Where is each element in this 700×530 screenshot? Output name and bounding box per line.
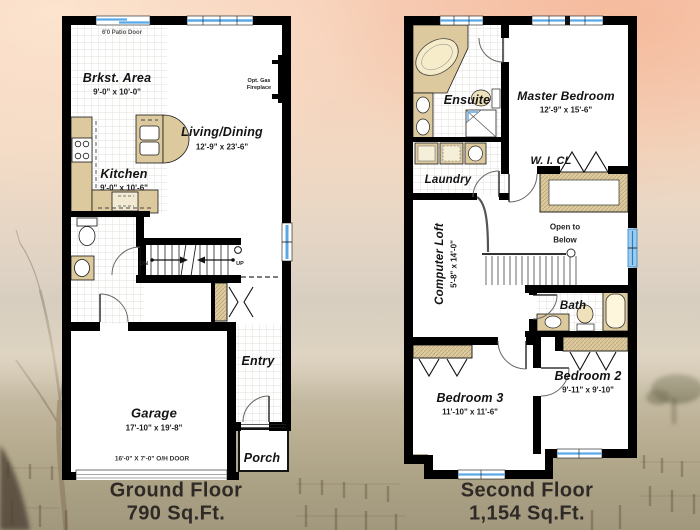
open-to-below-line1: Open to [550, 223, 580, 232]
garage-door [76, 470, 227, 480]
room-label-bath: Bath [560, 300, 586, 312]
floorplan-flyer: 6'0 Patio Door Brkst. Area 9'-0" x 10'-0… [0, 0, 700, 530]
stove [72, 138, 92, 162]
powder-toilet-tank [77, 218, 97, 226]
room-label-ensuite: Ensuite [444, 93, 491, 107]
room-label-kitchen: Kitchen [100, 167, 147, 181]
powder-toilet-bowl [79, 227, 95, 246]
ensuite-toilet-tank [492, 89, 500, 108]
stairs-down-label: DN [140, 261, 148, 267]
laundry-basin [469, 146, 483, 161]
overhead-door-note: 16'-0" X 7'-0" O/H DOOR [115, 456, 189, 463]
room-label-bedroom3: Bedroom 3 [436, 391, 503, 405]
room-label-bedroom2: Bedroom 2 [554, 369, 621, 383]
room-dims-bedroom3: 11'-10" x 11'-6" [442, 408, 498, 417]
open-to-below-line2: Below [553, 236, 577, 245]
room-label-garage: Garage [131, 406, 177, 421]
ground-floor-caption: Ground Floor [110, 480, 243, 503]
newel-post [567, 249, 575, 257]
closet-interior [549, 180, 619, 205]
room-dims-bedroom2: 9'-11" x 9'-10" [562, 386, 614, 395]
room-dims-kitchen: 9'-0" x 10'-6" [100, 184, 148, 193]
room-dims-master-bedroom: 12'-9" x 15'-6" [540, 106, 592, 115]
room-dims-brkst-area: 9'-0" x 10'-0" [93, 88, 141, 97]
fireplace-note-line1: Opt. Gas [248, 78, 271, 84]
room-dims-living-dining: 12'-9" x 23'-6" [196, 143, 248, 152]
bath-toilet-tank [577, 324, 594, 331]
room-dims-computer-loft: 5'-8" x 14'-0" [450, 240, 459, 288]
fireplace-note-line2: Fireplace [247, 85, 271, 91]
second-floor-caption: Second Floor [461, 480, 594, 503]
second-floor-area-caption: 1,154 Sq.Ft. [469, 503, 585, 526]
ensuite-sink-2 [417, 119, 430, 135]
stairs-up-label: UP [236, 261, 244, 267]
room-label-living-dining: Living/Dining [181, 125, 263, 139]
room-label-walk-in-closet: W. I. CL [530, 155, 571, 167]
room-label-porch: Porch [244, 451, 280, 465]
tree-trunk-dark-left [0, 445, 30, 530]
ensuite-sink-1 [417, 97, 430, 113]
island-sink [140, 126, 159, 140]
powder-sink [75, 260, 90, 277]
room-label-entry: Entry [242, 354, 275, 368]
newel-post [235, 247, 242, 254]
room-dims-garage: 17'-10" x 19'-8" [126, 424, 183, 433]
room-label-laundry: Laundry [425, 174, 472, 186]
patio-door-note: 6'0 Patio Door [102, 30, 142, 36]
room-label-brkst-area: Brkst. Area [83, 71, 151, 85]
bath-sink [545, 316, 561, 328]
bath-tub [606, 294, 625, 328]
room-label-computer-loft: Computer Loft [434, 223, 446, 305]
room-label-master-bedroom: Master Bedroom [517, 89, 615, 103]
ground-floor-area-caption: 790 Sq.Ft. [127, 503, 225, 526]
